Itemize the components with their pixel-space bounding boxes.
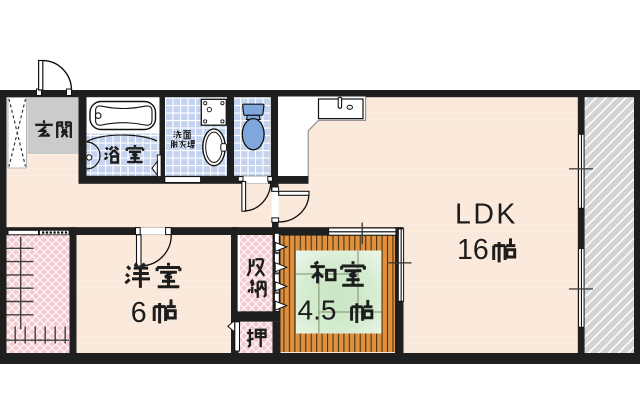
svg-text:LDK: LDK	[455, 199, 518, 231]
svg-text:6: 6	[131, 297, 147, 329]
svg-text:4.5: 4.5	[298, 295, 337, 326]
svg-text:16: 16	[457, 234, 489, 266]
